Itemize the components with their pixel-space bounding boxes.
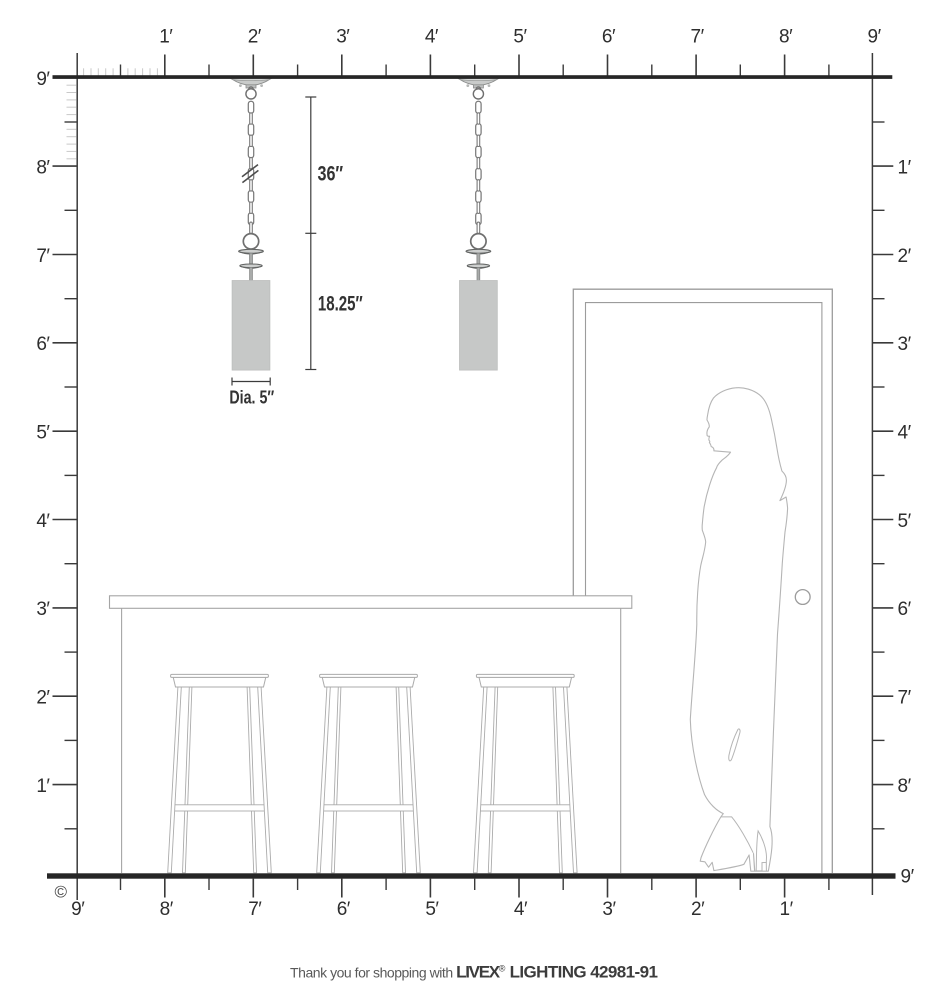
svg-text:6′: 6′: [602, 27, 616, 48]
svg-text:36″: 36″: [318, 162, 344, 186]
svg-text:6′: 6′: [898, 599, 912, 620]
svg-text:©: ©: [55, 883, 68, 902]
svg-text:3′: 3′: [336, 27, 350, 48]
svg-text:3′: 3′: [602, 899, 616, 920]
svg-text:5′: 5′: [898, 511, 912, 532]
svg-text:2′: 2′: [248, 27, 262, 48]
svg-text:1′: 1′: [898, 157, 912, 178]
svg-text:4′: 4′: [514, 899, 528, 920]
svg-text:Dia. 5″: Dia. 5″: [229, 388, 274, 408]
svg-text:9′: 9′: [901, 866, 915, 887]
svg-text:2′: 2′: [691, 899, 705, 920]
svg-text:7′: 7′: [898, 688, 912, 709]
svg-text:3′: 3′: [898, 334, 912, 355]
svg-text:5′: 5′: [425, 899, 439, 920]
svg-text:5′: 5′: [36, 423, 50, 444]
svg-text:8′: 8′: [36, 157, 50, 178]
svg-text:4′: 4′: [898, 423, 912, 444]
svg-text:2′: 2′: [898, 246, 912, 267]
svg-text:1′: 1′: [780, 899, 794, 920]
svg-text:8′: 8′: [160, 899, 174, 920]
svg-text:7′: 7′: [691, 27, 705, 48]
svg-text:4′: 4′: [36, 511, 50, 532]
svg-text:9′: 9′: [71, 899, 85, 920]
svg-text:6′: 6′: [337, 899, 351, 920]
svg-text:8′: 8′: [779, 27, 793, 48]
svg-text:1′: 1′: [36, 776, 50, 797]
svg-text:Thank you for shopping with LI: Thank you for shopping with LIVEX® LIGHT…: [290, 963, 658, 982]
svg-text:6′: 6′: [36, 334, 50, 355]
svg-text:9′: 9′: [36, 69, 50, 90]
svg-text:1′: 1′: [159, 27, 173, 48]
svg-text:2′: 2′: [36, 688, 50, 709]
svg-text:7′: 7′: [248, 899, 262, 920]
svg-text:5′: 5′: [513, 27, 527, 48]
svg-text:9′: 9′: [868, 27, 882, 48]
svg-text:8′: 8′: [898, 776, 912, 797]
svg-text:4′: 4′: [425, 27, 439, 48]
svg-text:7′: 7′: [36, 246, 50, 267]
svg-text:3′: 3′: [36, 599, 50, 620]
svg-text:18.25″: 18.25″: [318, 291, 363, 315]
